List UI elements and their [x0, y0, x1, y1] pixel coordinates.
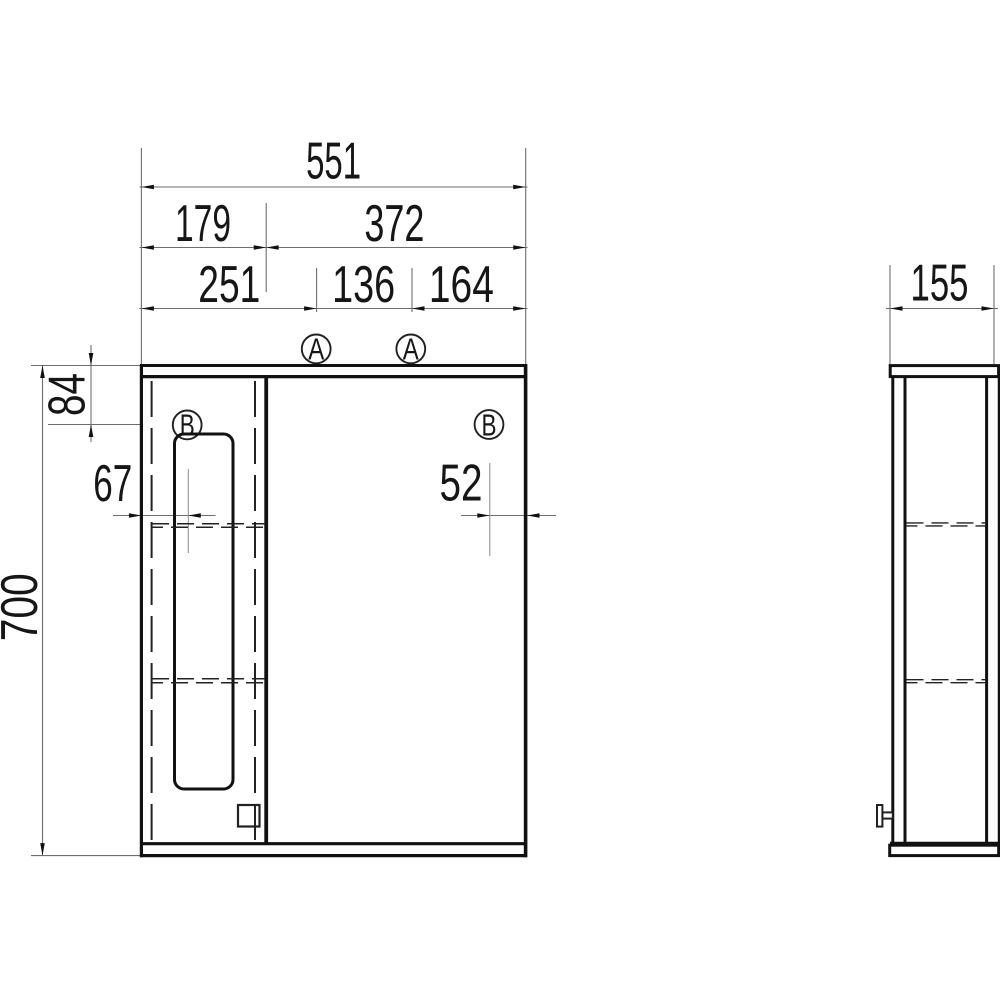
- svg-text:155: 155: [911, 254, 969, 312]
- svg-text:B: B: [180, 409, 195, 443]
- svg-text:164: 164: [429, 255, 494, 313]
- svg-text:A: A: [403, 333, 420, 367]
- svg-text:A: A: [308, 333, 325, 367]
- svg-text:136: 136: [332, 255, 395, 313]
- svg-text:84: 84: [38, 373, 96, 416]
- svg-text:551: 551: [306, 132, 361, 190]
- svg-text:52: 52: [440, 454, 483, 512]
- svg-text:700: 700: [0, 573, 48, 641]
- svg-text:372: 372: [364, 194, 424, 252]
- svg-text:179: 179: [175, 194, 231, 252]
- svg-text:67: 67: [93, 454, 132, 512]
- svg-text:251: 251: [198, 255, 260, 313]
- svg-text:B: B: [482, 408, 497, 442]
